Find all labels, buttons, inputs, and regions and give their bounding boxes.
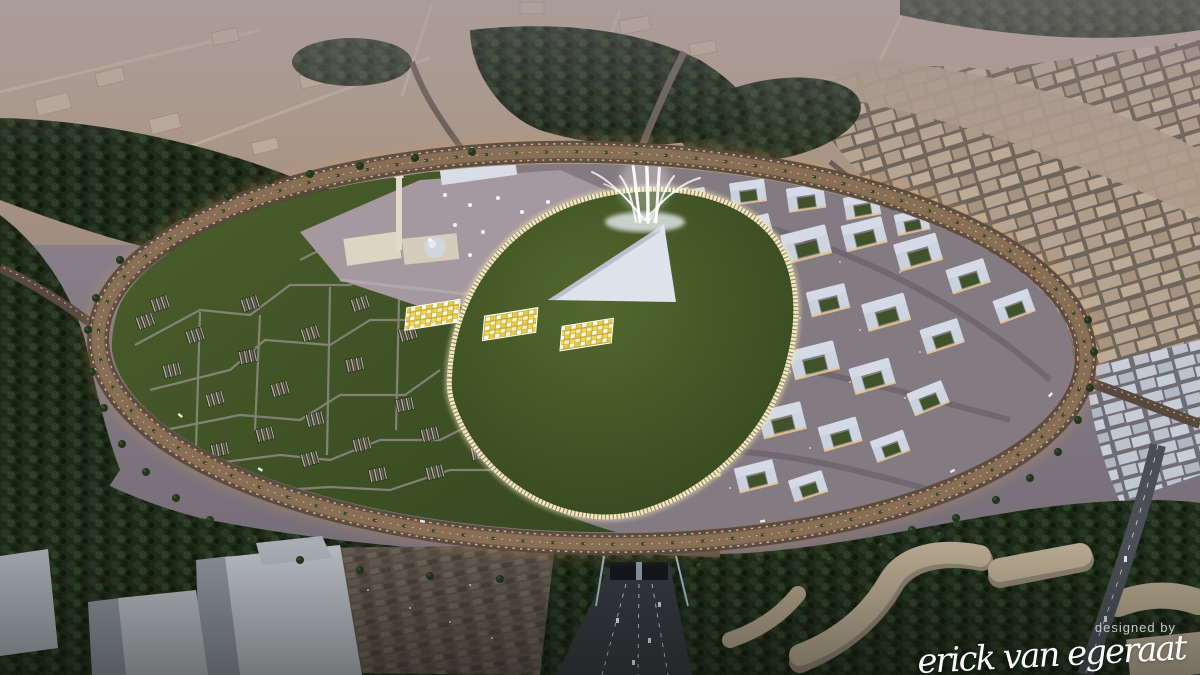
minaret bbox=[396, 178, 402, 250]
aerial-scene bbox=[0, 0, 1200, 675]
masterplan-rendering: designed by erick van egeraat bbox=[0, 0, 1200, 675]
dusk-haze bbox=[0, 0, 1200, 160]
dome bbox=[424, 236, 446, 258]
bottom-vignette bbox=[0, 545, 1200, 675]
